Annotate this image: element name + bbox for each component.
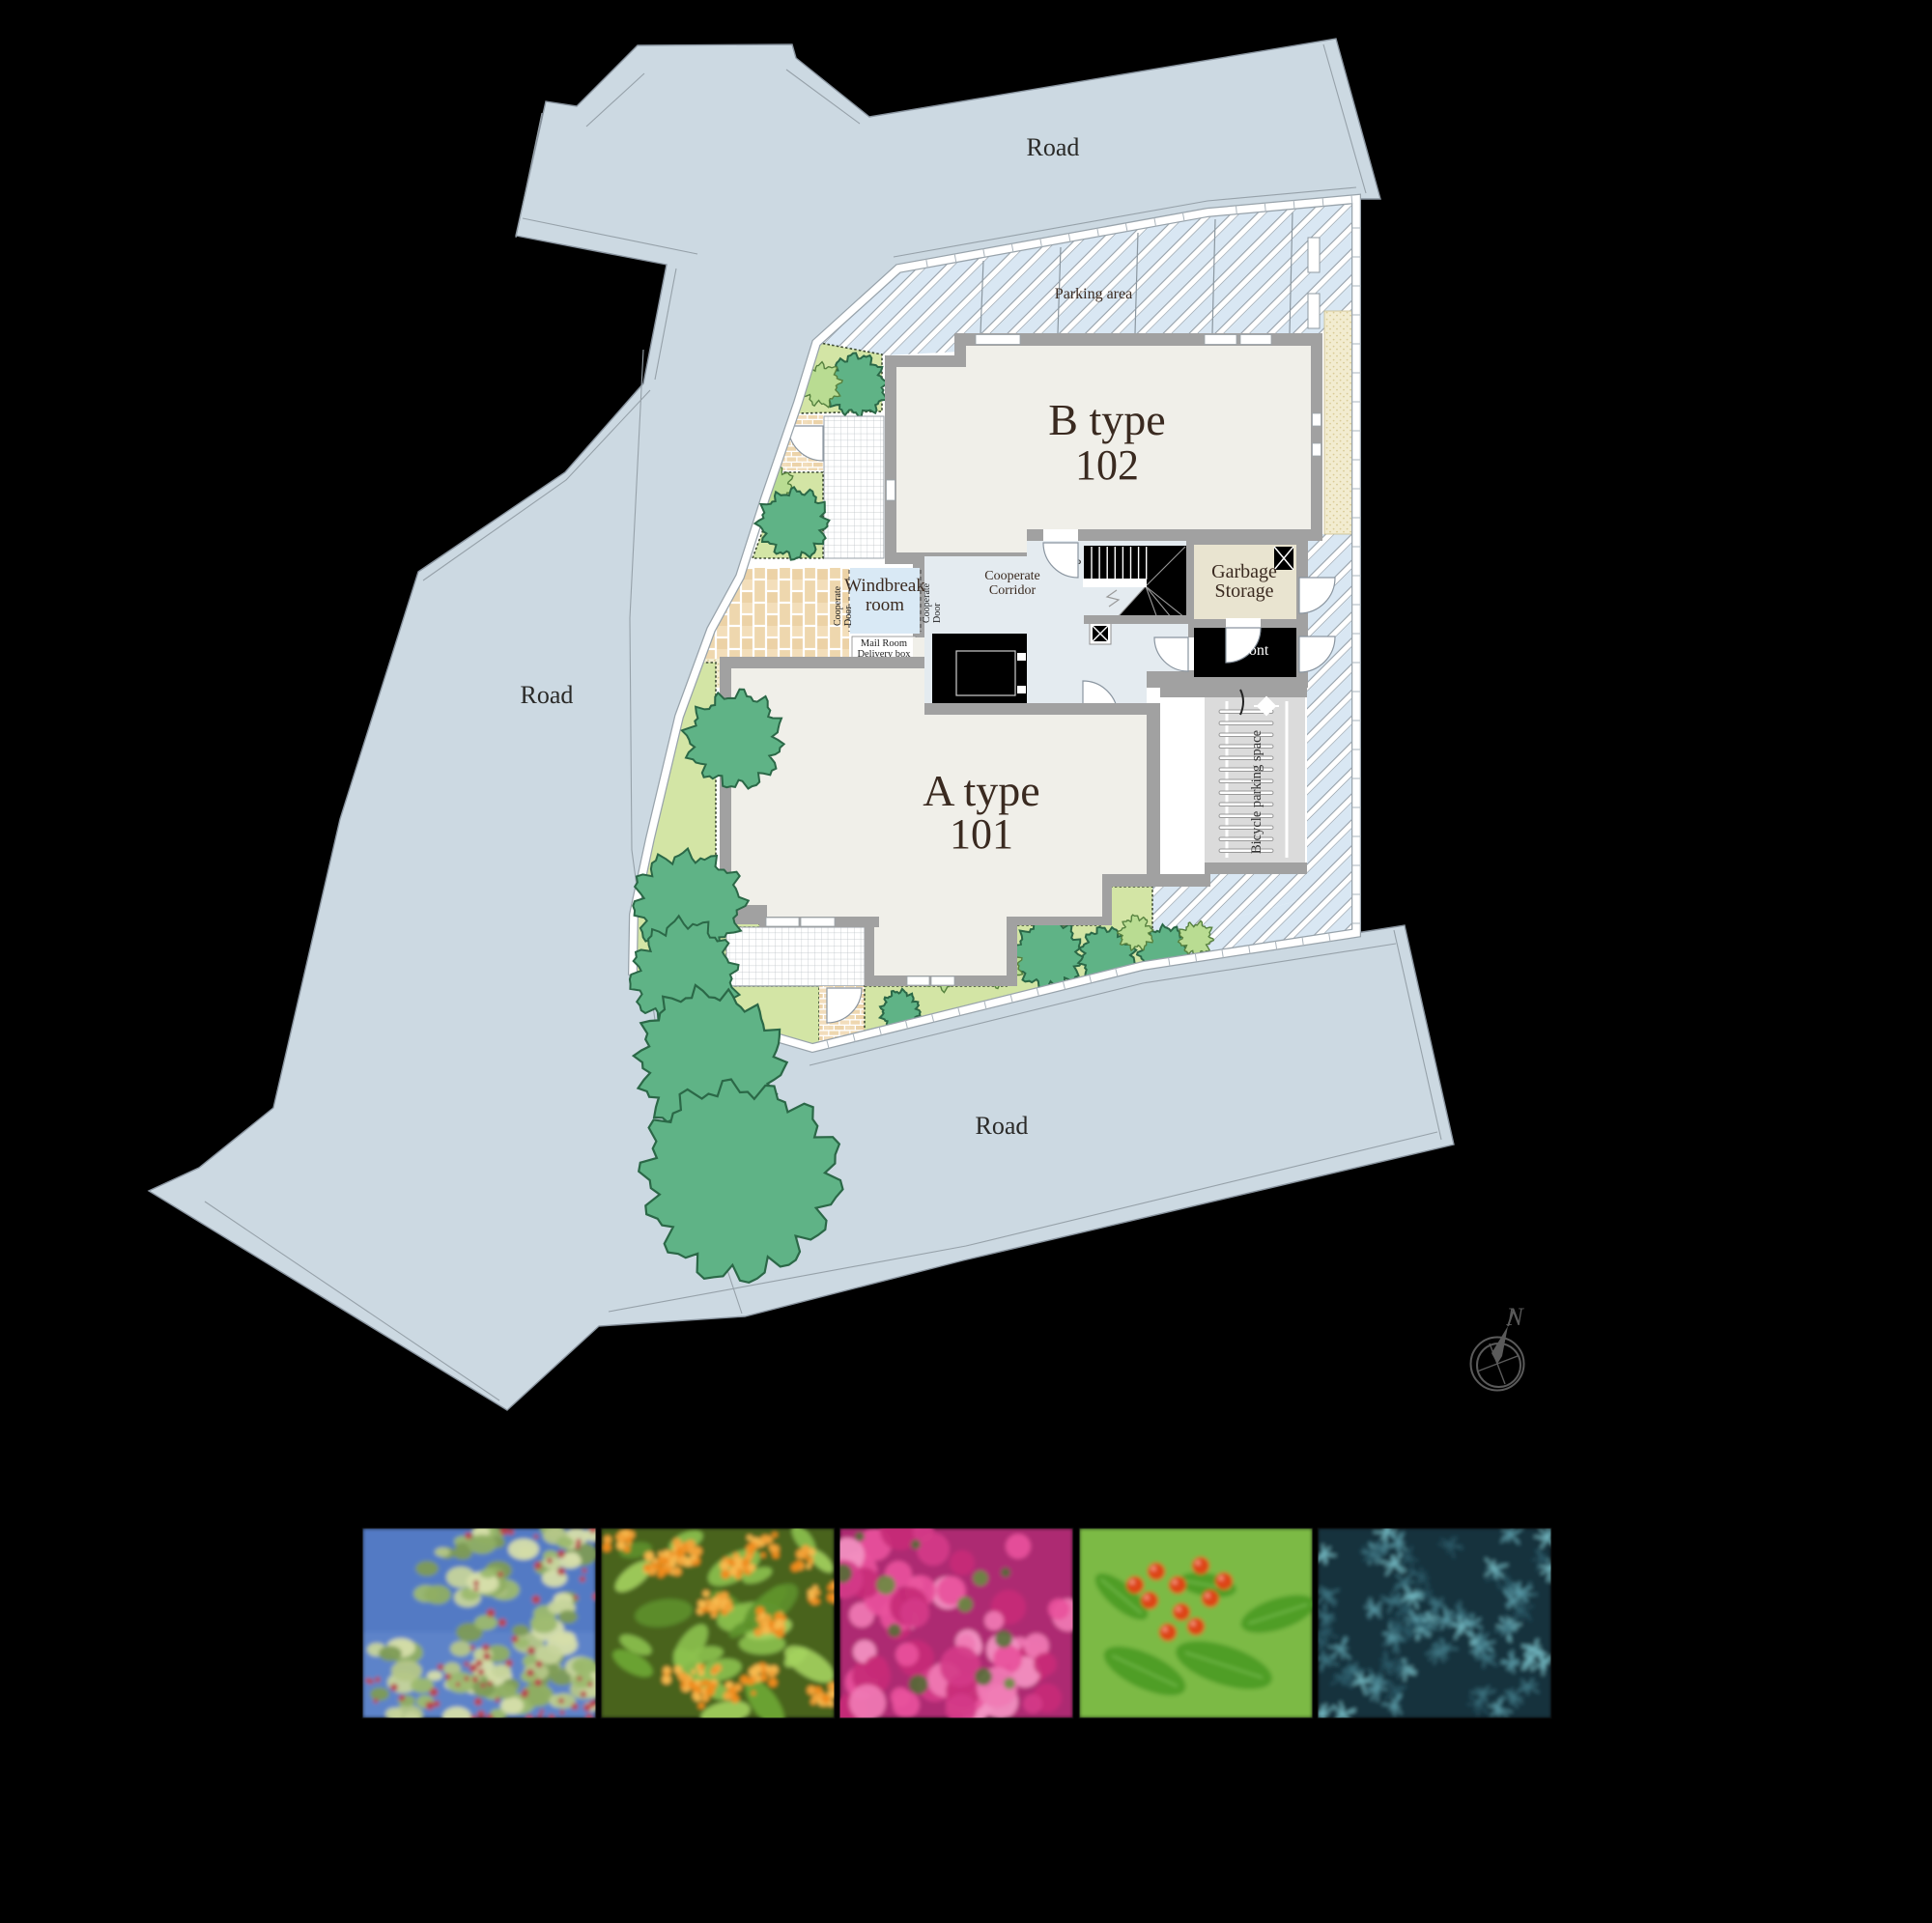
svg-text:Road: Road (976, 1112, 1029, 1140)
svg-text:Road: Road (1027, 133, 1080, 161)
svg-text:Cooperate: Cooperate (833, 585, 843, 626)
svg-text:Road: Road (521, 681, 574, 709)
svg-text:Door: Door (932, 603, 943, 623)
svg-text:B type: B type (1048, 395, 1165, 444)
svg-text:A type: A type (923, 766, 1039, 815)
svg-text:room: room (866, 595, 904, 615)
svg-text:Parking area: Parking area (1055, 286, 1132, 302)
svg-text:Cooperate: Cooperate (984, 569, 1040, 583)
svg-text:Mail Room: Mail Room (861, 638, 907, 649)
svg-text:Garbage: Garbage (1211, 561, 1277, 582)
svg-text:Storage: Storage (1214, 580, 1273, 602)
svg-text:Cooperate: Cooperate (922, 582, 932, 623)
svg-text:102: 102 (1075, 441, 1139, 489)
svg-text:Bicycle parking space: Bicycle parking space (1249, 730, 1264, 854)
svg-text:Windbreak: Windbreak (844, 576, 925, 596)
svg-text:101: 101 (950, 810, 1013, 858)
svg-text:Door: Door (843, 606, 854, 626)
svg-text:Front: Front (1236, 642, 1269, 659)
svg-text:N: N (1505, 1303, 1524, 1331)
svg-text:Corridor: Corridor (989, 583, 1037, 598)
